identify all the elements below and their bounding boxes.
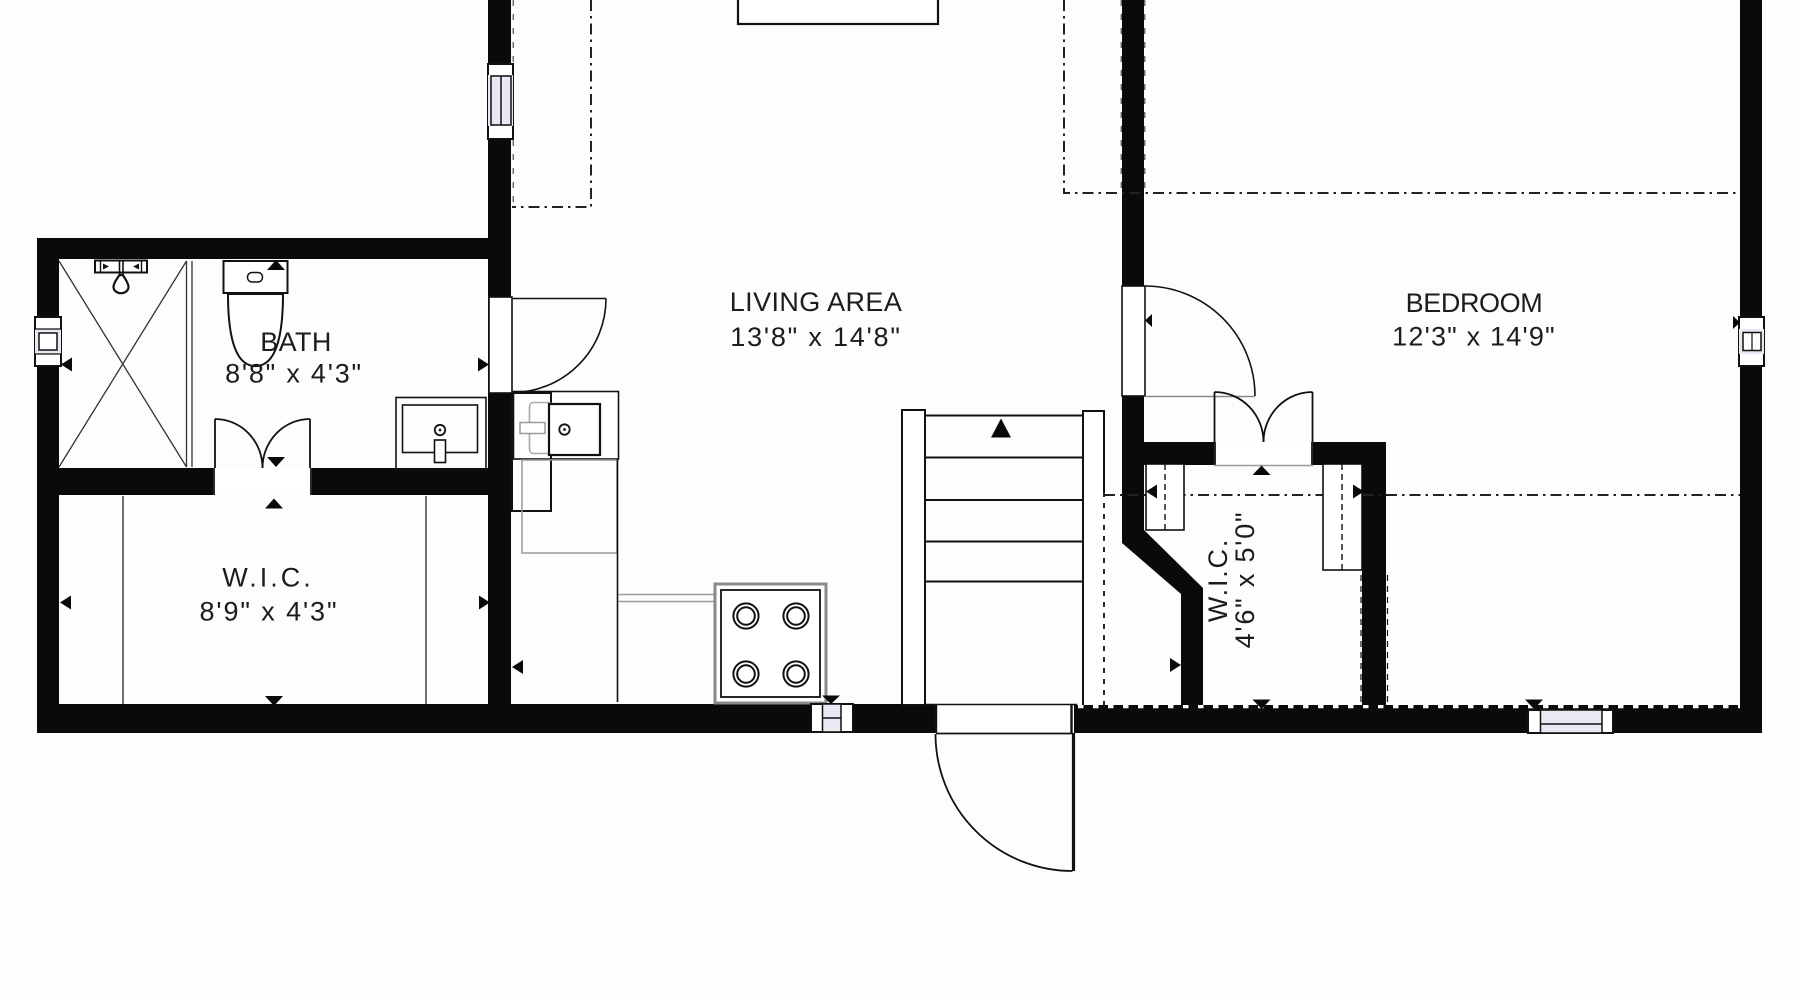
svg-text:LIVING AREA: LIVING AREA: [730, 287, 902, 317]
svg-text:8'8" x 4'3": 8'8" x 4'3": [225, 359, 363, 389]
svg-text:BATH: BATH: [260, 327, 332, 357]
svg-text:4'6" x 5'0": 4'6" x 5'0": [1230, 511, 1260, 649]
svg-text:BEDROOM: BEDROOM: [1406, 288, 1543, 318]
svg-text:8'9" x 4'3": 8'9" x 4'3": [200, 597, 339, 627]
svg-text:13'8" x 14'8": 13'8" x 14'8": [730, 322, 901, 352]
svg-text:W.I.C.: W.I.C.: [1203, 538, 1233, 622]
svg-text:W.I.C.: W.I.C.: [222, 563, 314, 593]
svg-text:12'3" x 14'9": 12'3" x 14'9": [1392, 322, 1556, 352]
